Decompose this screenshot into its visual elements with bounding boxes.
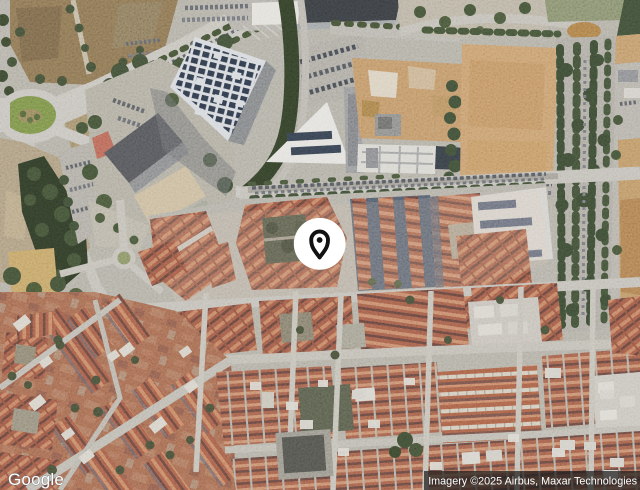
- svg-text:Imagery ©2025 Airbus, Maxar Te: Imagery ©2025 Airbus, Maxar Technologies: [428, 476, 637, 488]
- svg-text:Google: Google: [8, 470, 64, 489]
